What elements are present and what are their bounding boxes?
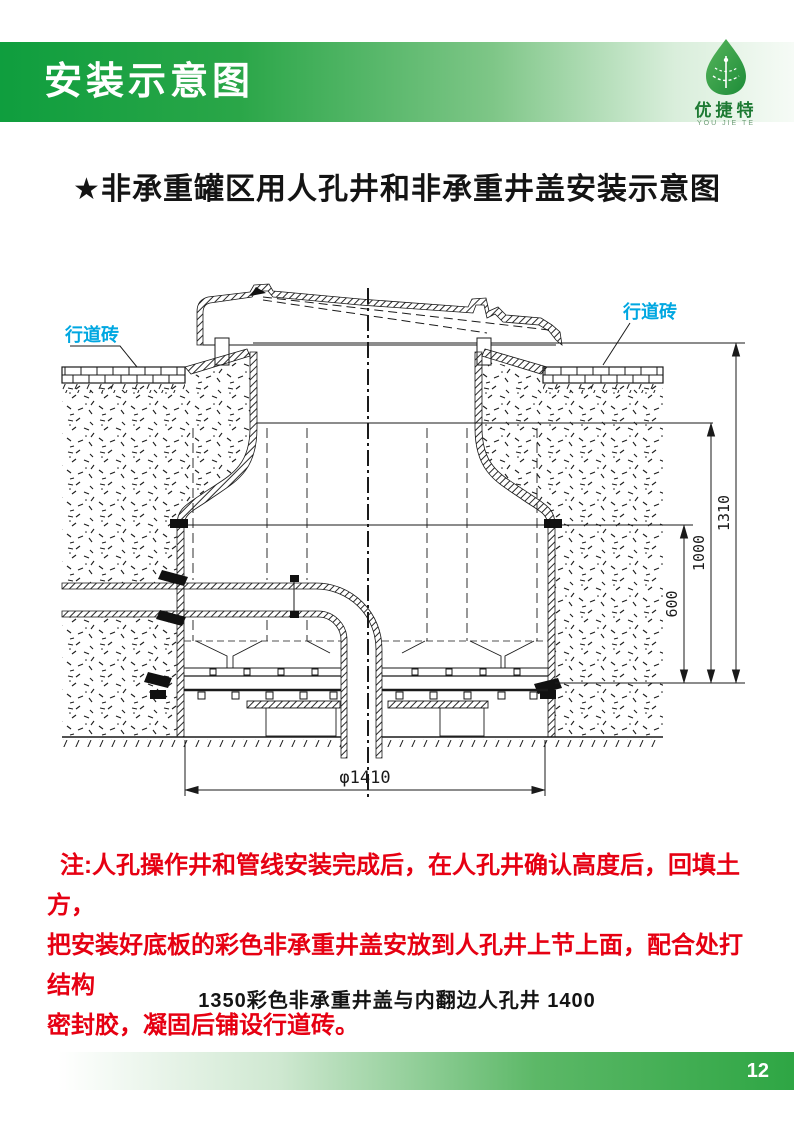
leaf-icon xyxy=(703,38,749,96)
pipe-bolt-top xyxy=(290,575,299,582)
dim-mid-height: 1000 xyxy=(690,535,708,571)
logo: 优捷特 YOU JIE TE xyxy=(684,38,768,128)
note-line: 注:人孔操作井和管线安装完成后，在人孔井确认高度后，回填土方， xyxy=(47,846,753,926)
logo-subtext: YOU JIE TE xyxy=(684,120,768,128)
pipe-bolt-bottom xyxy=(290,611,299,618)
note-block: 注:人孔操作井和管线安装完成后，在人孔井确认高度后，回填土方， 把安装好底板的彩… xyxy=(47,846,753,1046)
footer-band: 12 xyxy=(58,1052,794,1090)
base-plate xyxy=(184,668,548,699)
installation-diagram: 1310 1000 600 φ1410 行道砖 行道砖 xyxy=(30,278,760,808)
paver-label-right: 行道砖 xyxy=(622,301,677,322)
header-band: 安装示意图 xyxy=(0,42,794,122)
doc-title: ★非承重罐区用人孔井和非承重井盖安装示意图 xyxy=(0,164,794,208)
page: { "header": { "title": "安装示意图" }, "logo"… xyxy=(0,0,794,1123)
dim-diameter: φ1410 xyxy=(339,768,390,788)
joint-clamps xyxy=(144,519,562,699)
dim-total-height: 1310 xyxy=(715,495,733,531)
brick-paving xyxy=(62,367,663,393)
logo-name: 优捷特 xyxy=(684,101,768,120)
dim-lower-height: 600 xyxy=(663,590,681,617)
page-number: 12 xyxy=(747,1052,769,1090)
header-title: 安装示意图 xyxy=(44,42,254,122)
figure-caption: 1350彩色非承重井盖与内翻边人孔井 1400 xyxy=(0,984,794,1013)
bottom-ground-line xyxy=(62,737,663,747)
paver-label-left: 行道砖 xyxy=(64,324,119,345)
